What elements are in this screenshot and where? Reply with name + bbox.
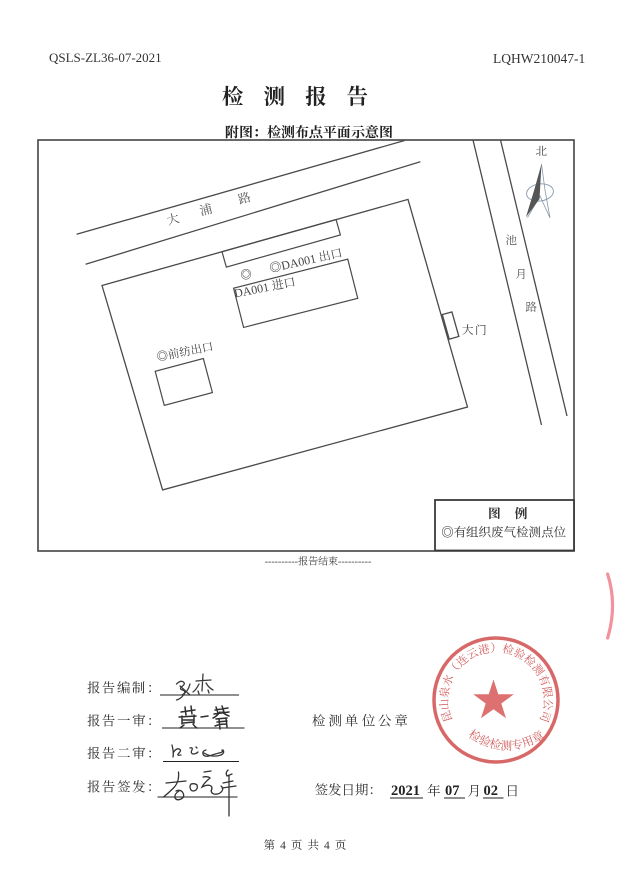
svg-text:第 4 页 共 4 页: 第 4 页 共 4 页 [264,837,348,853]
svg-text:大: 大 [164,208,181,229]
svg-text:◎DA001 出口: ◎DA001 出口 [268,244,344,277]
svg-text:2021: 2021 [391,783,420,799]
svg-text:日: 日 [506,780,520,800]
svg-text:池: 池 [506,232,518,248]
svg-text:LQHW210047-1: LQHW210047-1 [493,51,585,66]
svg-text:月: 月 [516,266,528,282]
svg-text:QSLS-ZL36-07-2021: QSLS-ZL36-07-2021 [49,50,162,65]
svg-text:签发日期：: 签发日期： [315,779,383,799]
svg-text:02: 02 [484,783,499,799]
svg-text:检测单位公章: 检测单位公章 [312,710,411,730]
svg-text:路: 路 [236,187,253,208]
svg-text:报告签发：: 报告签发： [87,776,162,796]
svg-text:检测报告: 检测报告 [222,80,388,111]
svg-text:报告一审：: 报告一审： [87,710,162,730]
svg-text:年: 年 [427,780,441,800]
svg-text:大门: 大门 [462,322,488,338]
svg-text:北: 北 [536,143,548,159]
svg-text:路: 路 [526,299,538,315]
svg-text:◎有组织废气检测点位: ◎有组织废气检测点位 [441,523,566,541]
svg-text:◎: ◎ [241,267,253,283]
svg-text:附图：检测布点平面示意图: 附图：检测布点平面示意图 [225,122,393,142]
svg-text:报告二审：: 报告二审： [87,742,162,762]
svg-text:图例: 图例 [488,503,541,522]
svg-text:浦: 浦 [197,199,214,220]
svg-text:月: 月 [468,780,482,800]
svg-text:报告编制：: 报告编制： [87,677,162,697]
svg-text:----------报告结束----------: ----------报告结束---------- [265,553,372,568]
svg-text:◎前纺出口: ◎前纺出口 [155,338,214,365]
svg-text:07: 07 [445,783,460,799]
